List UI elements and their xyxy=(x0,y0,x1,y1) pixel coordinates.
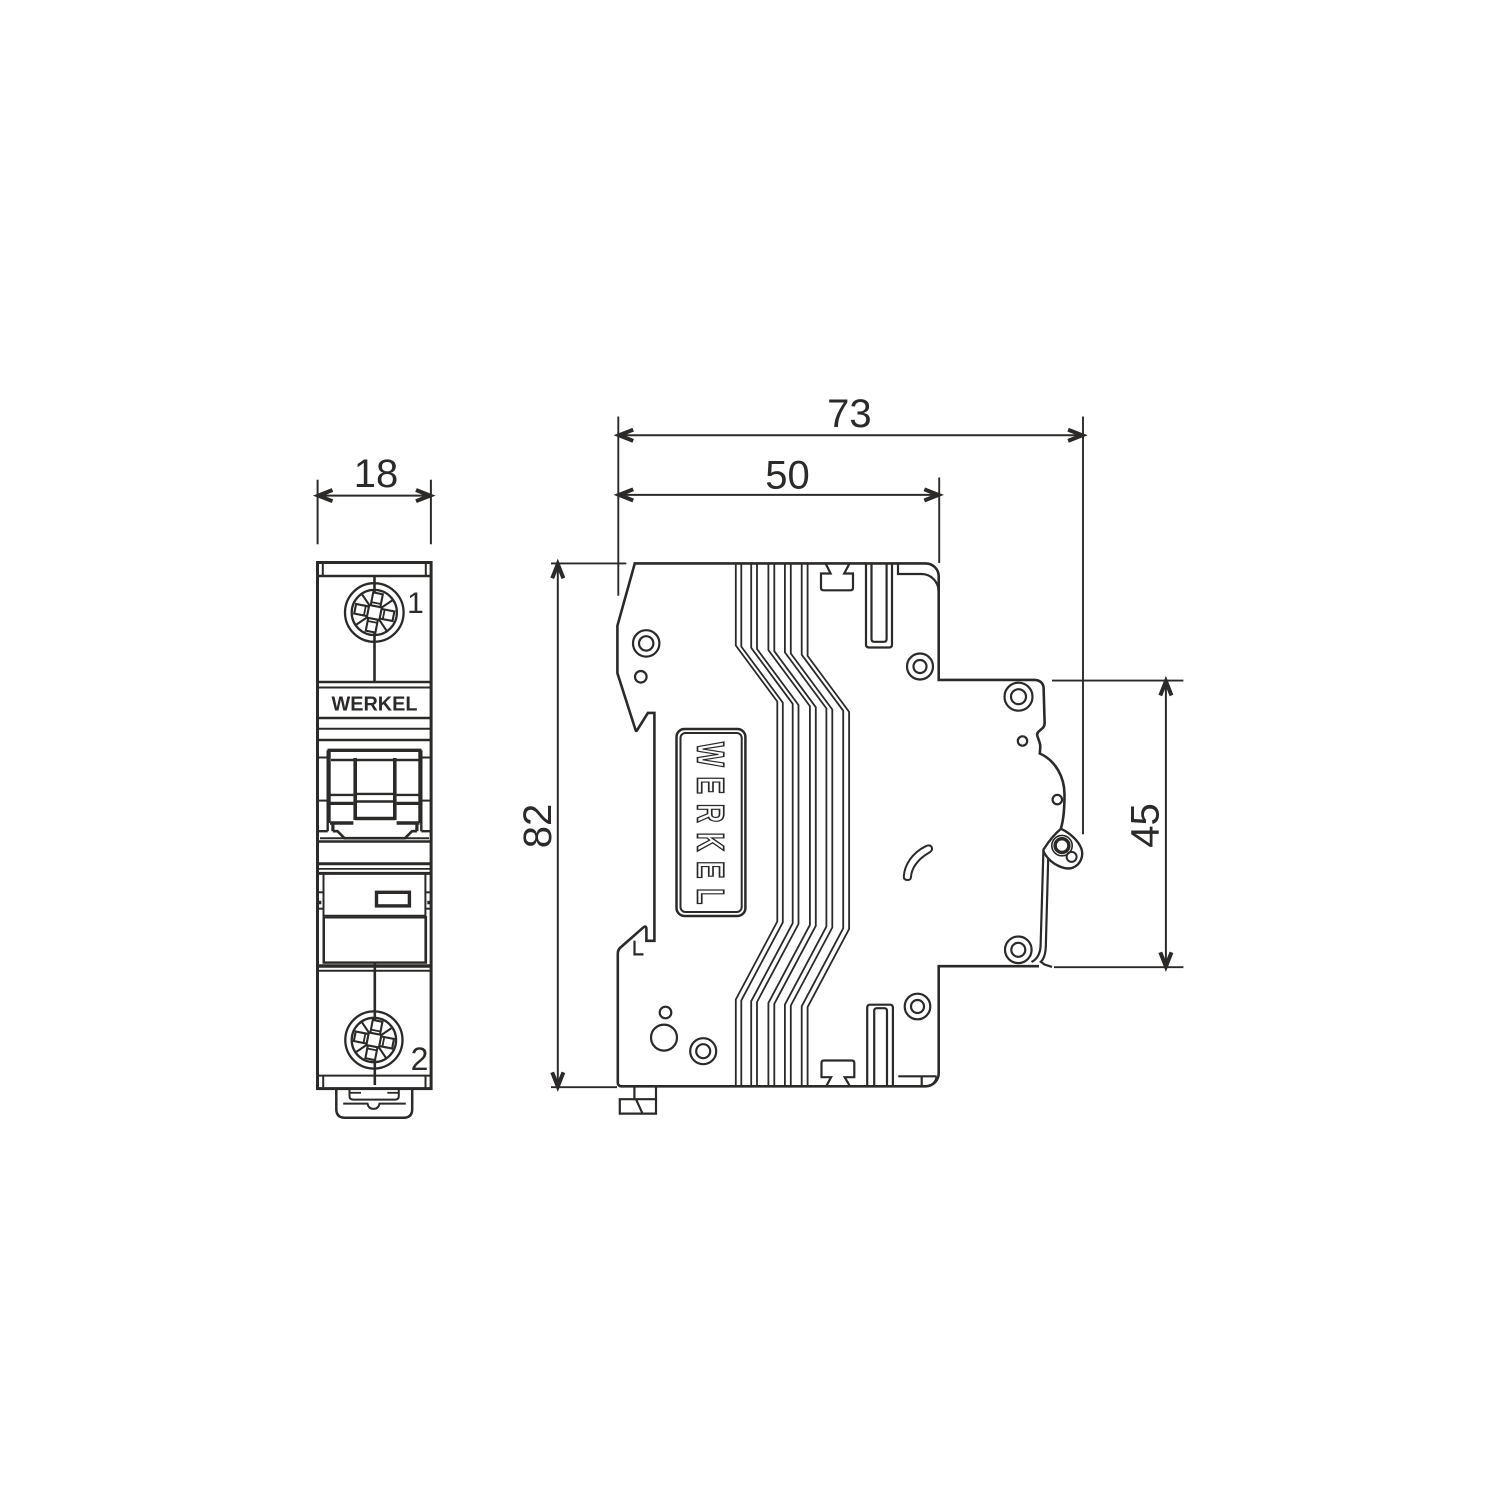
svg-text:45: 45 xyxy=(1123,803,1167,848)
svg-text:18: 18 xyxy=(354,452,399,496)
svg-text:82: 82 xyxy=(516,804,560,849)
svg-text:1: 1 xyxy=(407,587,424,620)
svg-text:73: 73 xyxy=(827,392,872,436)
svg-text:WERKEL: WERKEL xyxy=(332,693,418,716)
svg-text:2: 2 xyxy=(411,1041,429,1077)
svg-text:WERKEL: WERKEL xyxy=(689,742,731,914)
svg-text:50: 50 xyxy=(765,454,810,498)
